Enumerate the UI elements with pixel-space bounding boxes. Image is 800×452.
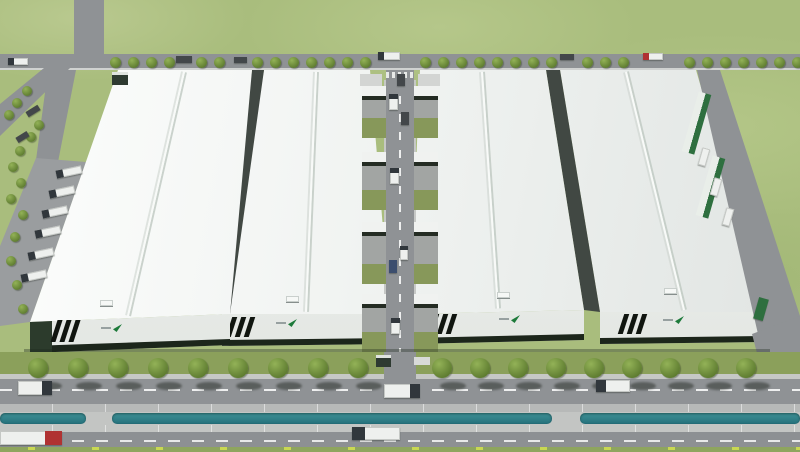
tree <box>600 57 611 68</box>
tree-shadow <box>236 382 262 390</box>
tree <box>146 57 157 68</box>
truck <box>401 112 409 125</box>
roof-vent <box>497 292 510 298</box>
truck <box>390 168 399 184</box>
tree <box>28 358 48 378</box>
canal-segment <box>580 413 800 424</box>
dock-roof <box>362 294 386 308</box>
tree <box>16 178 26 188</box>
tree <box>546 57 557 68</box>
marker-plant <box>348 447 355 450</box>
truck-cab <box>352 427 365 440</box>
truck <box>596 380 630 392</box>
canal-segment <box>112 413 552 424</box>
tree <box>196 57 207 68</box>
tree-shadow <box>478 382 504 390</box>
tree <box>252 57 263 68</box>
tree-shadow <box>744 382 770 390</box>
tree <box>4 110 14 120</box>
truck <box>8 58 28 65</box>
truck <box>389 260 397 273</box>
tree-shadow <box>630 382 656 390</box>
tree <box>15 146 25 156</box>
dock-roof <box>414 86 438 100</box>
tree <box>110 57 121 68</box>
truck-cab <box>389 94 398 99</box>
access-road-north <box>74 0 104 58</box>
dock-roof <box>414 222 438 236</box>
truck-cab <box>391 318 400 323</box>
tree <box>584 358 604 378</box>
marker-plant <box>284 447 291 450</box>
tree <box>756 57 767 68</box>
tree <box>12 280 22 290</box>
aerial-render <box>0 0 800 452</box>
roof-vent <box>286 296 299 302</box>
tree <box>492 57 503 68</box>
tree-shadow <box>356 382 382 390</box>
tree <box>702 57 713 68</box>
truck-cab <box>55 169 64 178</box>
concrete-pad <box>360 74 382 86</box>
truck <box>643 53 663 60</box>
tree <box>214 57 225 68</box>
truck <box>234 57 247 63</box>
marker-plant <box>540 447 547 450</box>
tree <box>6 194 16 204</box>
tree <box>456 57 467 68</box>
tree <box>508 358 528 378</box>
tree <box>736 358 756 378</box>
tree <box>308 358 328 378</box>
truck <box>384 384 420 398</box>
canal-segment <box>0 413 86 424</box>
tree <box>528 57 539 68</box>
dock-lawn <box>414 190 438 210</box>
dock-lawn <box>414 118 438 138</box>
tree <box>68 358 88 378</box>
guard-booth <box>376 355 391 367</box>
tree <box>342 57 353 68</box>
truck-cab <box>643 53 649 60</box>
truck-cab <box>596 380 606 392</box>
tree <box>474 57 485 68</box>
truck-cab <box>48 189 57 198</box>
tree <box>622 358 642 378</box>
tree <box>164 57 175 68</box>
tree <box>618 57 629 68</box>
truck <box>18 381 52 395</box>
truck-cab <box>410 384 420 398</box>
concrete-pad <box>418 74 440 86</box>
tree <box>270 57 281 68</box>
scene-canvas <box>0 0 800 452</box>
tree <box>510 57 521 68</box>
tree-shadow <box>196 382 222 390</box>
tree <box>792 57 800 68</box>
tree <box>774 57 785 68</box>
tree <box>698 358 718 378</box>
tree <box>420 57 431 68</box>
truck-cab <box>390 168 399 173</box>
tree <box>268 358 288 378</box>
tree <box>228 358 248 378</box>
tree <box>22 86 32 96</box>
tree <box>18 210 28 220</box>
dock-roof <box>362 152 386 166</box>
tree <box>18 304 28 314</box>
marker-plant <box>412 447 419 450</box>
logo-text-mark <box>663 319 673 321</box>
truck <box>389 94 398 110</box>
dock-roof <box>362 222 386 236</box>
tree <box>148 358 168 378</box>
truck-cab <box>400 246 408 250</box>
truck <box>397 74 405 86</box>
truck-cab <box>42 381 52 395</box>
marker-plant <box>668 447 675 450</box>
truck-cab <box>8 58 14 65</box>
tree-shadow <box>316 382 342 390</box>
tree <box>348 358 368 378</box>
tree <box>6 256 16 266</box>
truck <box>0 431 62 445</box>
logo-text-mark <box>101 327 111 329</box>
tree-shadow <box>668 382 694 390</box>
tree <box>470 358 490 378</box>
tree <box>34 120 44 130</box>
tree-shadow <box>276 382 302 390</box>
truck-cab <box>34 229 43 238</box>
tree-shadow <box>156 382 182 390</box>
tree <box>188 358 208 378</box>
dock-lawn <box>362 118 386 138</box>
marker-plant <box>156 447 163 450</box>
tree <box>128 57 139 68</box>
truck <box>391 318 400 334</box>
secondary-road-dash <box>0 440 800 442</box>
roof-vent <box>100 300 113 306</box>
truck-cab <box>45 431 62 445</box>
tree-shadow <box>554 382 580 390</box>
dock-roof <box>414 294 438 308</box>
dock-roof <box>362 86 386 100</box>
tree <box>306 57 317 68</box>
marker-plant <box>604 447 611 450</box>
truck <box>378 52 400 60</box>
tree-shadow <box>706 382 732 390</box>
dock-roof <box>414 152 438 166</box>
marker-plant <box>92 447 99 450</box>
green-strip <box>0 447 800 452</box>
tree <box>546 358 566 378</box>
marker-plant <box>796 447 800 450</box>
truck <box>560 54 574 60</box>
tree <box>288 57 299 68</box>
tree <box>738 57 749 68</box>
tree <box>360 57 371 68</box>
tree <box>432 358 452 378</box>
logo-text-mark <box>499 318 509 320</box>
guard-booth <box>112 72 128 85</box>
truck-cab <box>41 209 50 218</box>
tree-shadow <box>440 382 466 390</box>
tree <box>12 98 22 108</box>
roof-vent <box>664 288 677 294</box>
tree-shadow <box>76 382 102 390</box>
concrete-pad <box>414 357 430 365</box>
marker-plant <box>220 447 227 450</box>
marker-plant <box>476 447 483 450</box>
dock-lawn <box>414 264 438 284</box>
truck-cab <box>20 273 29 282</box>
truck <box>400 246 408 260</box>
tree <box>10 232 20 242</box>
tree <box>684 57 695 68</box>
marker-plant <box>28 447 35 450</box>
tree <box>582 57 593 68</box>
tree <box>324 57 335 68</box>
tree <box>8 162 18 172</box>
marker-plant <box>732 447 739 450</box>
dock-lawn <box>362 190 386 210</box>
dock-lawn <box>362 264 386 284</box>
tree <box>660 358 680 378</box>
truck-cab <box>27 251 36 260</box>
tree-shadow <box>116 382 142 390</box>
logo-text-mark <box>276 322 286 324</box>
truck-cab <box>378 52 384 60</box>
tree <box>720 57 731 68</box>
tree <box>108 358 128 378</box>
tree-shadow <box>516 382 542 390</box>
tree <box>438 57 449 68</box>
median-strip <box>0 404 800 412</box>
truck <box>352 427 400 440</box>
truck <box>176 56 192 63</box>
